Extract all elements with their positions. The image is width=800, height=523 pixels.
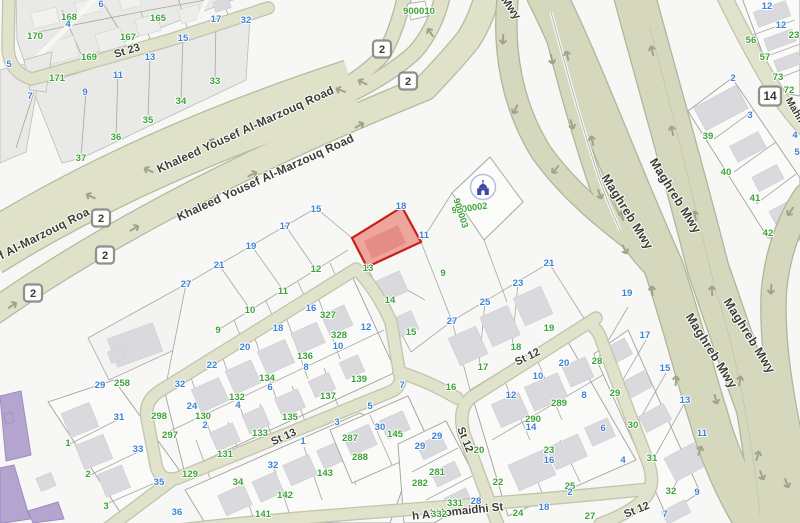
svg-text:171: 171 <box>49 73 66 84</box>
svg-text:2: 2 <box>567 487 572 498</box>
svg-text:3: 3 <box>747 110 752 121</box>
svg-text:169: 169 <box>81 52 97 63</box>
svg-text:133: 133 <box>252 428 268 439</box>
svg-text:18: 18 <box>273 323 284 334</box>
svg-text:18: 18 <box>511 342 522 353</box>
svg-text:2: 2 <box>405 76 411 88</box>
svg-text:328: 328 <box>331 330 348 341</box>
svg-text:145: 145 <box>387 429 404 440</box>
svg-text:2: 2 <box>379 44 385 56</box>
svg-text:2: 2 <box>202 420 207 431</box>
svg-text:42: 42 <box>763 228 774 239</box>
svg-text:13: 13 <box>145 52 156 63</box>
svg-text:72: 72 <box>784 85 795 96</box>
svg-text:21: 21 <box>544 258 555 269</box>
svg-text:14: 14 <box>763 89 777 103</box>
svg-text:7: 7 <box>662 509 667 520</box>
svg-text:165: 165 <box>150 13 167 24</box>
svg-text:287: 287 <box>342 433 358 444</box>
svg-text:29: 29 <box>95 380 106 391</box>
svg-text:6: 6 <box>267 382 272 393</box>
svg-text:8: 8 <box>303 362 309 373</box>
svg-text:16: 16 <box>446 382 457 393</box>
svg-text:1: 1 <box>300 436 306 447</box>
svg-text:16: 16 <box>544 455 555 466</box>
svg-text:12: 12 <box>361 322 372 333</box>
svg-text:2: 2 <box>85 469 90 480</box>
svg-text:29: 29 <box>610 388 621 399</box>
svg-text:35: 35 <box>143 115 154 126</box>
svg-text:25: 25 <box>480 297 491 308</box>
svg-text:288: 288 <box>352 452 369 463</box>
svg-text:1: 1 <box>65 438 71 449</box>
svg-text:30: 30 <box>375 422 386 433</box>
svg-text:36: 36 <box>172 507 183 518</box>
svg-text:9: 9 <box>694 487 699 498</box>
svg-text:13: 13 <box>680 395 691 406</box>
svg-text:297: 297 <box>162 430 178 441</box>
svg-text:10: 10 <box>245 305 256 316</box>
svg-text:22: 22 <box>207 360 218 371</box>
svg-text:39: 39 <box>703 131 714 142</box>
svg-text:24: 24 <box>513 508 524 519</box>
svg-text:10: 10 <box>333 341 344 352</box>
svg-text:41: 41 <box>750 193 761 204</box>
svg-text:332: 332 <box>431 509 447 520</box>
svg-text:27: 27 <box>181 279 192 290</box>
svg-text:28: 28 <box>592 356 603 367</box>
svg-text:4: 4 <box>235 400 241 411</box>
svg-text:23: 23 <box>789 30 800 41</box>
svg-text:131: 131 <box>217 449 234 460</box>
svg-text:15: 15 <box>311 204 322 215</box>
svg-text:29: 29 <box>415 441 426 452</box>
svg-text:14: 14 <box>526 422 537 433</box>
svg-text:57: 57 <box>760 52 771 63</box>
svg-text:32: 32 <box>666 486 677 497</box>
svg-text:19: 19 <box>246 241 257 252</box>
svg-text:17: 17 <box>280 221 291 232</box>
svg-text:20: 20 <box>559 358 570 369</box>
svg-text:7: 7 <box>27 91 32 102</box>
svg-text:12: 12 <box>762 1 773 12</box>
svg-text:28: 28 <box>471 496 482 507</box>
svg-text:6: 6 <box>98 0 103 10</box>
svg-text:13: 13 <box>363 263 374 274</box>
svg-text:5: 5 <box>794 147 800 158</box>
svg-text:5: 5 <box>367 401 373 412</box>
svg-text:33: 33 <box>210 76 221 87</box>
svg-text:17: 17 <box>478 362 489 373</box>
svg-text:12: 12 <box>776 20 787 31</box>
svg-text:27: 27 <box>447 316 458 327</box>
svg-text:23: 23 <box>513 278 524 289</box>
svg-text:12: 12 <box>311 264 322 275</box>
svg-text:15: 15 <box>406 327 417 338</box>
svg-text:18: 18 <box>539 502 550 513</box>
svg-text:21: 21 <box>214 260 225 271</box>
svg-text:11: 11 <box>113 70 124 81</box>
svg-text:3: 3 <box>334 417 339 428</box>
svg-text:5: 5 <box>6 59 12 70</box>
svg-text:40: 40 <box>721 167 732 178</box>
svg-text:20: 20 <box>240 342 251 353</box>
svg-text:10: 10 <box>533 371 544 382</box>
svg-text:258: 258 <box>114 378 131 389</box>
svg-text:27: 27 <box>585 511 596 522</box>
svg-text:35: 35 <box>154 477 165 488</box>
svg-text:32: 32 <box>268 460 279 471</box>
svg-text:37: 37 <box>76 153 87 164</box>
svg-text:137: 137 <box>320 391 336 402</box>
svg-text:289: 289 <box>551 398 567 409</box>
svg-text:29: 29 <box>432 431 443 442</box>
svg-text:14: 14 <box>385 295 396 306</box>
svg-text:7: 7 <box>399 380 404 391</box>
svg-text:143: 143 <box>317 468 333 479</box>
svg-text:34: 34 <box>233 477 244 488</box>
svg-text:4: 4 <box>65 19 71 30</box>
svg-text:17: 17 <box>640 330 651 341</box>
svg-text:22: 22 <box>493 477 504 488</box>
svg-text:129: 129 <box>182 469 198 480</box>
svg-text:20: 20 <box>474 445 485 456</box>
svg-text:56: 56 <box>746 35 757 46</box>
svg-text:6: 6 <box>600 423 605 434</box>
svg-text:3: 3 <box>103 501 108 512</box>
svg-text:11: 11 <box>278 286 289 297</box>
svg-text:11: 11 <box>697 428 708 439</box>
svg-text:331: 331 <box>447 498 464 509</box>
svg-text:31: 31 <box>647 453 658 464</box>
svg-text:36: 36 <box>111 132 122 143</box>
svg-text:11: 11 <box>419 230 430 241</box>
svg-text:136: 136 <box>297 351 313 362</box>
svg-text:2: 2 <box>730 73 735 84</box>
svg-text:170: 170 <box>27 31 43 42</box>
svg-text:19: 19 <box>544 323 555 334</box>
svg-text:16: 16 <box>306 303 317 314</box>
svg-text:30: 30 <box>628 420 639 431</box>
svg-text:298: 298 <box>151 411 168 422</box>
svg-text:9: 9 <box>440 268 445 279</box>
svg-text:327: 327 <box>320 310 336 321</box>
svg-text:18: 18 <box>396 201 407 212</box>
svg-text:34: 34 <box>176 96 187 107</box>
svg-text:15: 15 <box>178 33 189 44</box>
svg-text:9: 9 <box>215 325 220 336</box>
svg-text:142: 142 <box>277 490 293 501</box>
svg-text:900010: 900010 <box>403 6 435 17</box>
svg-text:32: 32 <box>241 15 252 26</box>
svg-text:33: 33 <box>133 444 144 455</box>
svg-text:17: 17 <box>211 14 222 25</box>
svg-text:12: 12 <box>506 390 517 401</box>
svg-text:73: 73 <box>773 72 784 83</box>
svg-text:139: 139 <box>351 374 367 385</box>
svg-text:135: 135 <box>282 412 299 423</box>
svg-text:2: 2 <box>30 288 36 300</box>
svg-text:2: 2 <box>98 213 104 225</box>
svg-text:4: 4 <box>792 130 798 141</box>
svg-text:4: 4 <box>620 455 626 466</box>
svg-text:32: 32 <box>175 379 186 390</box>
svg-text:2: 2 <box>102 250 108 262</box>
svg-text:8: 8 <box>581 390 587 401</box>
svg-text:167: 167 <box>120 32 136 43</box>
svg-text:19: 19 <box>622 288 633 299</box>
svg-text:282: 282 <box>412 478 428 489</box>
svg-text:9: 9 <box>82 87 87 98</box>
svg-text:281: 281 <box>429 467 446 478</box>
svg-text:15: 15 <box>660 363 671 374</box>
svg-text:31: 31 <box>114 412 125 423</box>
svg-text:141: 141 <box>255 509 272 520</box>
